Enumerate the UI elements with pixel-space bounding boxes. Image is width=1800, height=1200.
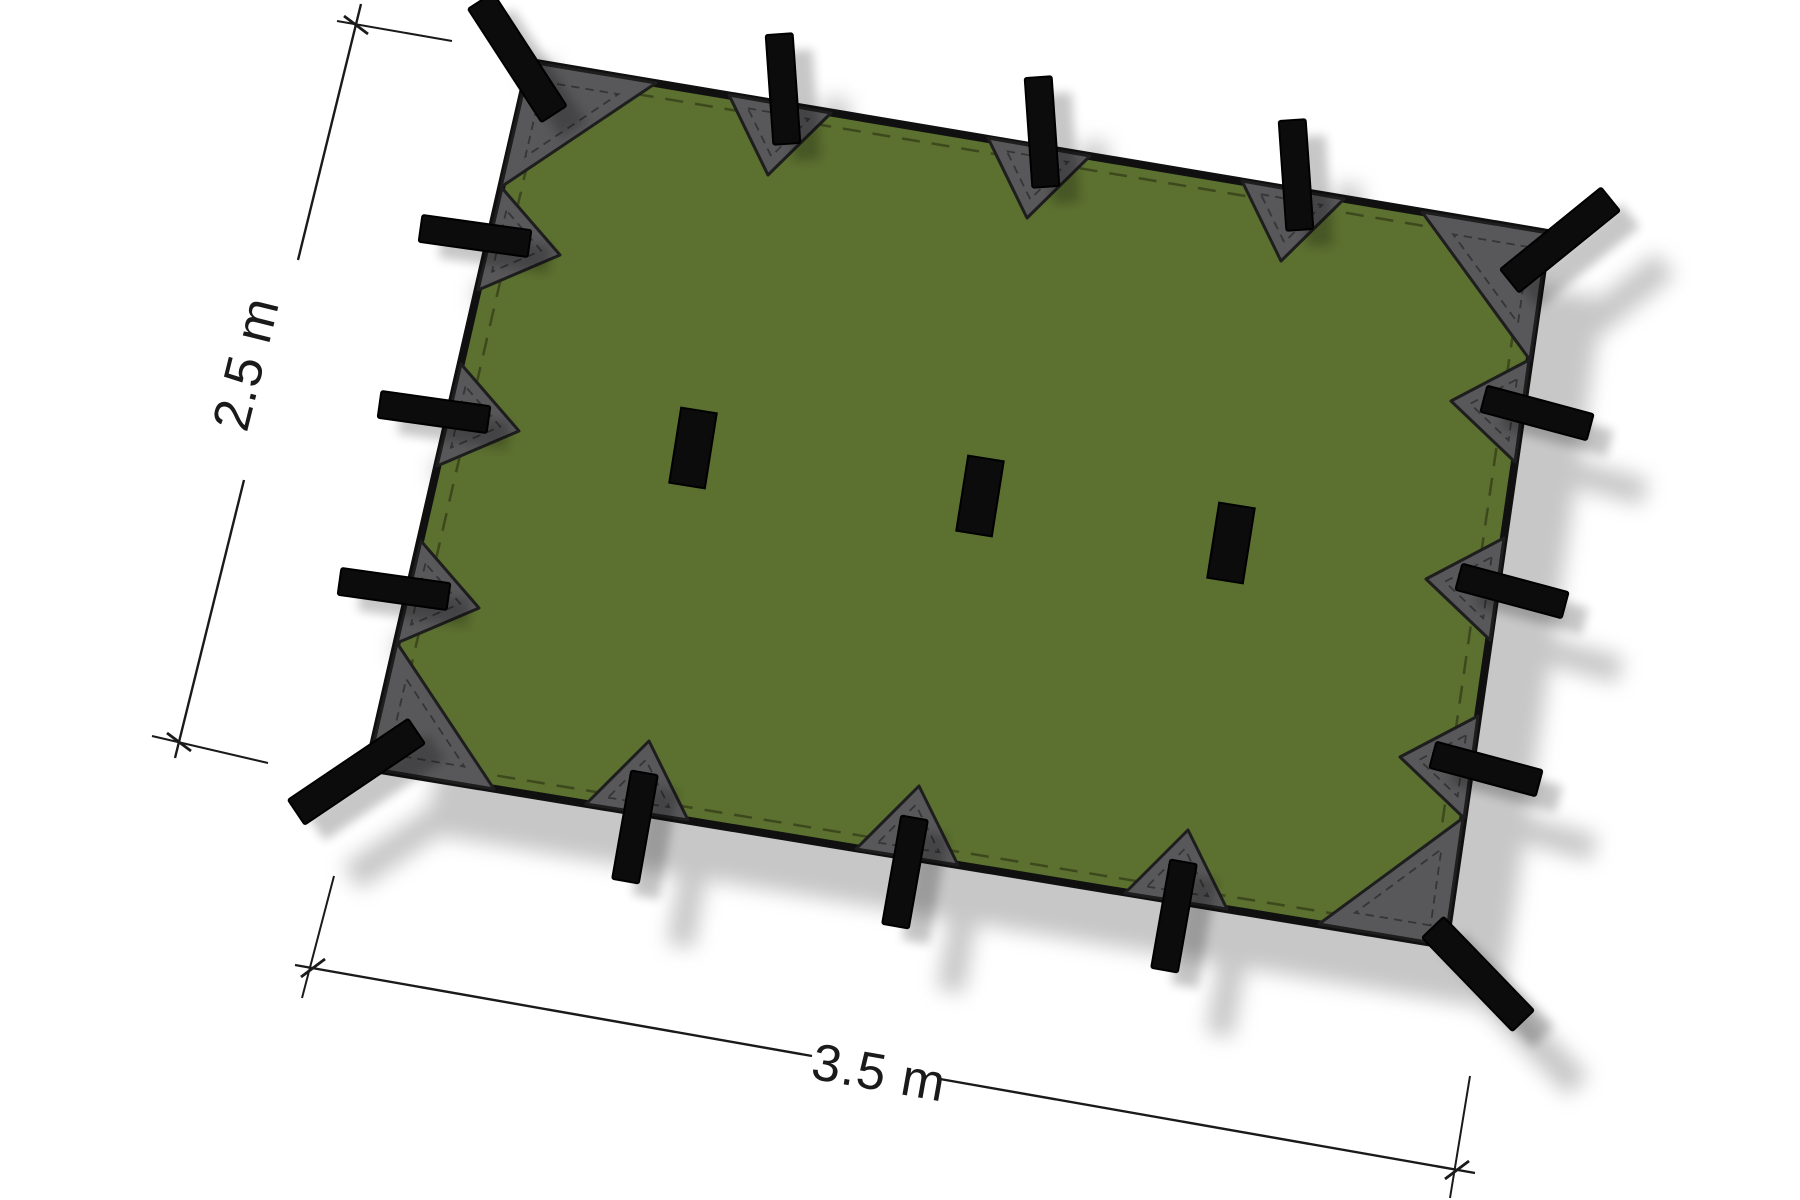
tarp-dimension-diagram: 2.5 m 3.5 m (0, 0, 1800, 1200)
diagram-canvas: 2.5 m 3.5 m (0, 0, 1800, 1200)
width-tick-left (301, 959, 325, 977)
width-extension-line-right (1450, 1076, 1470, 1198)
width-dimension-label: 3.5 m (807, 1033, 950, 1114)
height-dimension-line-lower (175, 480, 244, 758)
width-tick-right (1445, 1161, 1469, 1179)
width-dimension-line-right (940, 1079, 1475, 1173)
width-extension-line-left (302, 876, 334, 998)
height-dimension-label: 2.5 m (202, 291, 291, 436)
height-dimension-line-upper (298, 4, 361, 260)
height-extension-line-bottom (152, 736, 268, 763)
width-dimension-line-left (295, 965, 812, 1056)
height-tick-bottom (167, 733, 191, 751)
